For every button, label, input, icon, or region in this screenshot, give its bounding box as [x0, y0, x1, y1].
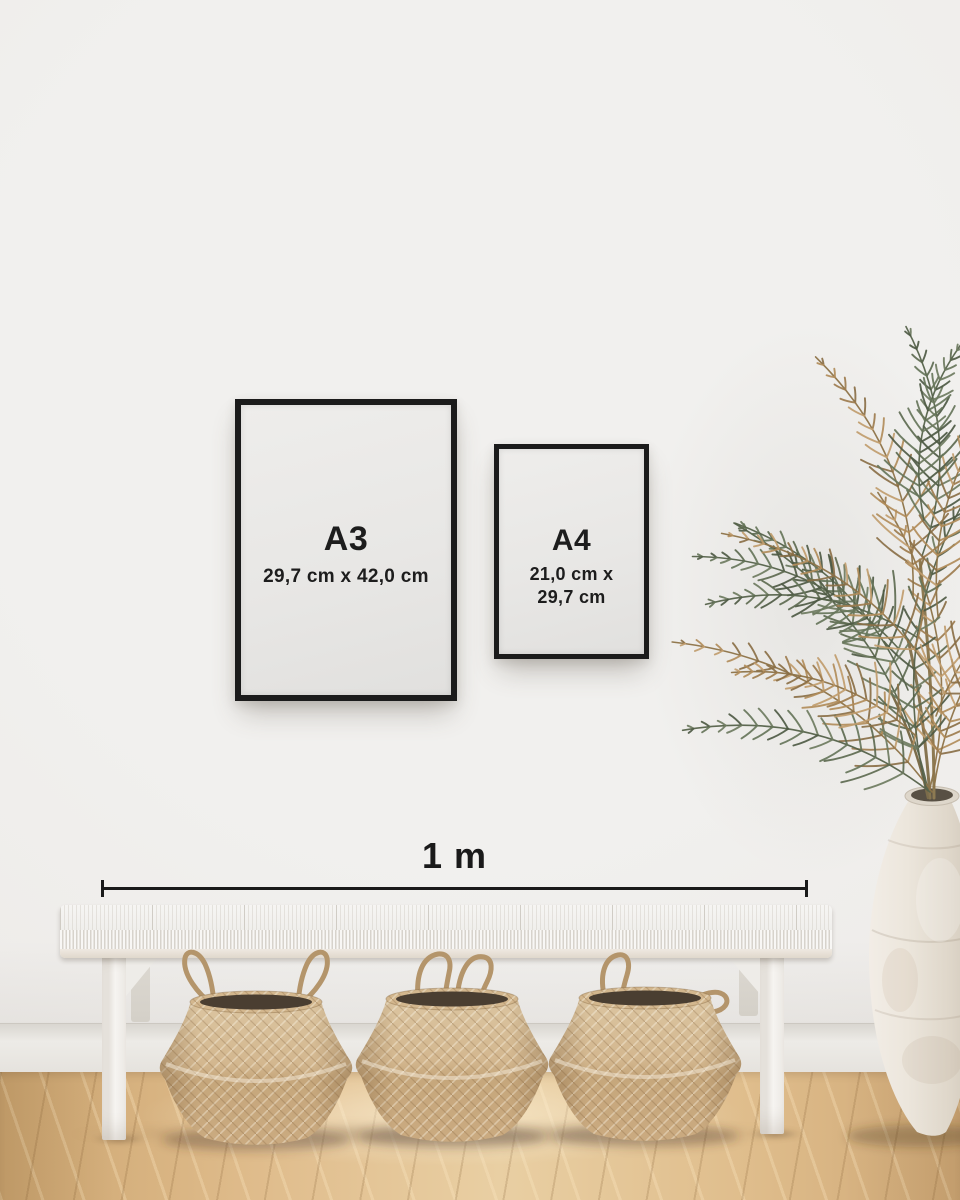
bench-seat: [60, 905, 832, 958]
bench-seat-rail: [60, 949, 832, 958]
bench-left-leg: [102, 954, 126, 1140]
bench-seat-weave: [60, 905, 832, 930]
bench: [0, 0, 960, 1200]
size-guide-scene: A3 29,7 cm x 42,0 cm A4 21,0 cm x 29,7 c…: [0, 0, 960, 1200]
bench-floor-shadow: [70, 1122, 810, 1146]
bench-right-leg: [760, 954, 784, 1134]
bench-seat-front-edge: [60, 930, 832, 950]
